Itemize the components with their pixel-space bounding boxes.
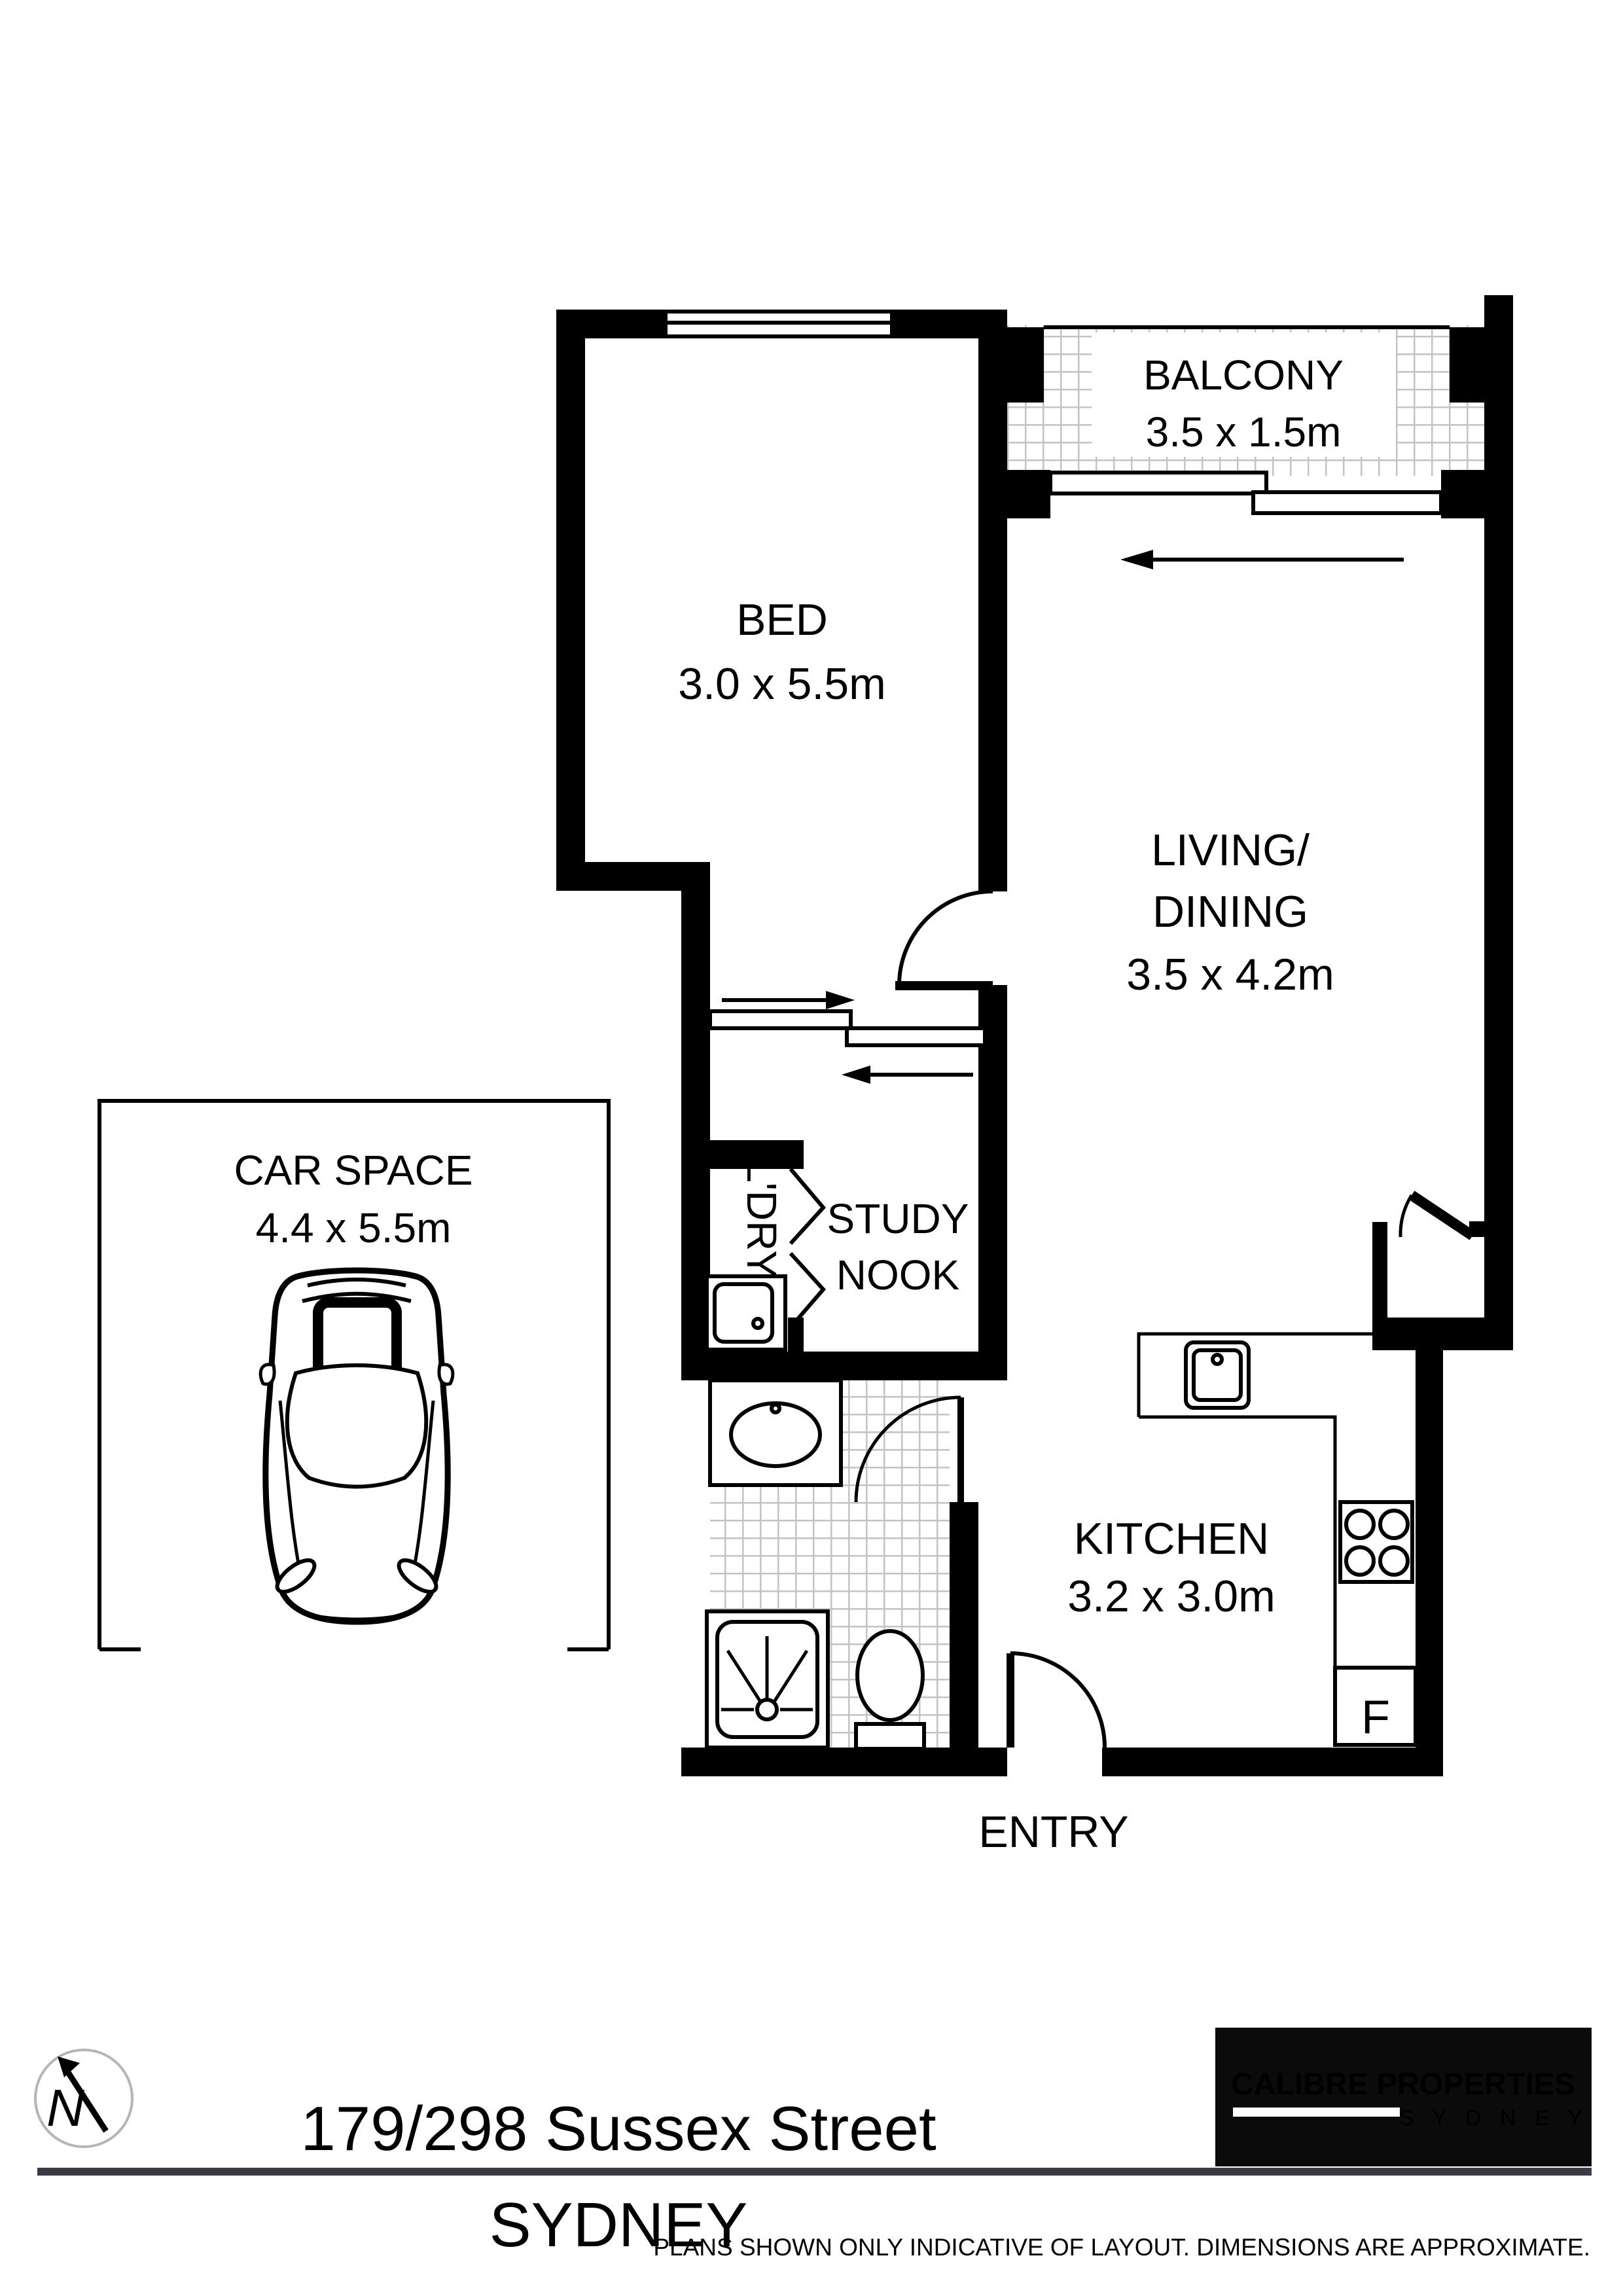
window-line-bottom <box>668 334 890 338</box>
cooktop <box>1340 1502 1412 1582</box>
bed-label: BED <box>736 595 828 645</box>
footer: N 179/298 Sussex Street SYDNEY CALIBRE P… <box>35 2028 1592 2261</box>
slider-panel-right <box>1253 492 1441 513</box>
burner <box>1380 1511 1408 1538</box>
living-hinged-door <box>895 891 993 990</box>
kitchen-sink <box>1186 1342 1249 1408</box>
living-label-1: LIVING/ <box>1151 825 1310 875</box>
shower-drain <box>757 1700 777 1719</box>
wall-bottom-kitchen <box>1102 1748 1443 1776</box>
car-mirror-left <box>260 1365 274 1384</box>
bedroom-window <box>668 310 890 338</box>
window-line-top <box>668 310 890 314</box>
wall-niche-left <box>1372 1222 1387 1334</box>
slider-panel-left <box>1050 473 1266 493</box>
shower <box>707 1611 828 1748</box>
slide-arrow-icon <box>1120 550 1153 569</box>
footer-divider <box>37 2168 1592 2176</box>
slider-panel-right <box>847 1028 985 1045</box>
bifold-panel-1 <box>791 1169 823 1244</box>
toilet-cistern <box>856 1724 924 1749</box>
fridge: F <box>1335 1668 1416 1745</box>
wall-bath-right <box>950 1502 978 1748</box>
hall-niche-door <box>1400 1195 1472 1237</box>
wall-balcony-pillar-left <box>978 327 1044 403</box>
car-windshield <box>287 1365 426 1487</box>
window-line-mid <box>668 321 890 325</box>
wall-balcony-pillar-right <box>1450 327 1513 403</box>
bed-dims: 3.0 x 5.5m <box>678 659 886 709</box>
kitchen-label: KITCHEN <box>1074 1514 1269 1564</box>
logo-underline-bar <box>1233 2108 1400 2117</box>
floor-plan-page: F BALCONY 3.5 x 1.5m BED 3.0 x 5.5m LIVI… <box>0 0 1623 2296</box>
laundry-label: L'DRY <box>738 1159 785 1278</box>
slider-panel-left <box>710 1011 851 1028</box>
wall-bed-left <box>556 310 585 891</box>
car-space-label: CAR SPACE <box>234 1147 473 1194</box>
balcony-top-edge-line <box>1044 325 1450 329</box>
car-mirror-right <box>439 1365 453 1384</box>
agency-logo: CALIBRE PROPERTIES S Y D N E Y <box>1215 2028 1592 2166</box>
slide-arrow-icon <box>826 991 855 1009</box>
logo-city-text: S Y D N E Y <box>1399 2106 1589 2130</box>
door-swing-arc <box>1400 1195 1412 1237</box>
burner <box>1346 1511 1374 1538</box>
bifold-laundry-door <box>791 1169 823 1327</box>
living-label-2: DINING <box>1152 887 1308 937</box>
wall-balcony-slider-stub-left <box>1007 470 1050 518</box>
wall-living-right <box>1484 295 1513 1350</box>
car-top-view <box>260 1270 453 1622</box>
toilet <box>856 1631 924 1749</box>
entry-label: ENTRY <box>978 1807 1128 1857</box>
study-nook-label-1: STUDY <box>827 1195 969 1242</box>
balcony-sliding-door <box>1050 473 1441 569</box>
door-swing-arc <box>1010 1653 1105 1748</box>
kitchen-dims: 3.2 x 3.0m <box>1067 1571 1275 1621</box>
entry-door <box>1010 1653 1105 1748</box>
slide-arrow-icon-2 <box>842 1066 870 1084</box>
door-leaf <box>1412 1195 1472 1236</box>
burner <box>1380 1547 1408 1575</box>
wall-kitchen-right <box>1416 1335 1443 1776</box>
wall-balcony-slider-stub-right <box>1441 470 1484 518</box>
address-line: 179/298 Sussex Street <box>300 2094 936 2164</box>
burner <box>1346 1547 1374 1575</box>
compass: N <box>35 2050 132 2147</box>
laundry-tub <box>707 1276 785 1350</box>
disclaimer-text: PLANS SHOWN ONLY INDICATIVE OF LAYOUT. D… <box>653 2234 1590 2261</box>
bifold-panel-2 <box>791 1253 823 1327</box>
balcony-label: BALCONY <box>1143 351 1344 399</box>
door-swing-arc <box>899 891 993 985</box>
living-dims: 3.5 x 4.2m <box>1126 950 1334 999</box>
fridge-label: F <box>1361 1691 1390 1744</box>
wall-bath-top <box>681 1352 1007 1380</box>
study-nook-label-2: NOOK <box>836 1251 959 1299</box>
bedroom-cavity-slider <box>710 991 985 1084</box>
vanity-basin <box>710 1380 841 1485</box>
logo-brand-text: CALIBRE PROPERTIES <box>1232 2066 1575 2101</box>
wall-bottom-bath <box>681 1748 1007 1776</box>
balcony-dims: 3.5 x 1.5m <box>1146 408 1342 456</box>
door-leaf <box>895 981 993 990</box>
car-space-dims: 4.4 x 5.5m <box>256 1204 452 1251</box>
